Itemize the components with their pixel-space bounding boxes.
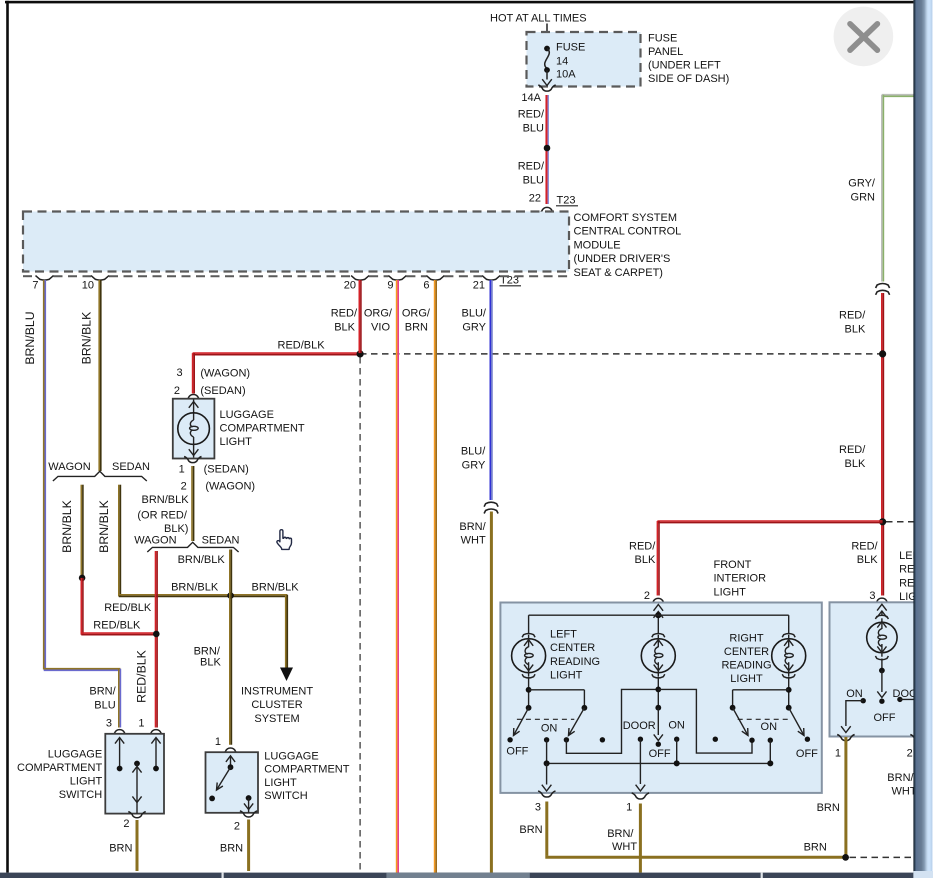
svg-text:SEDAN: SEDAN: [202, 534, 240, 546]
svg-text:COMPARTMENT: COMPARTMENT: [17, 762, 102, 774]
svg-text:ORG/: ORG/: [364, 307, 393, 319]
svg-text:14: 14: [556, 56, 568, 68]
svg-text:BLU: BLU: [523, 123, 544, 135]
svg-text:(WAGON): (WAGON): [205, 481, 255, 493]
svg-text:RED/BLK: RED/BLK: [93, 620, 141, 632]
svg-text:COMFORT SYSTEM: COMFORT SYSTEM: [574, 212, 678, 224]
svg-text:COMPARTMENT: COMPARTMENT: [220, 423, 305, 435]
svg-text:BRN/BLK: BRN/BLK: [252, 582, 300, 594]
svg-text:BRN/BLK: BRN/BLK: [97, 499, 111, 552]
svg-text:2: 2: [174, 385, 180, 397]
svg-text:COMPARTMENT: COMPARTMENT: [264, 764, 349, 776]
svg-text:(SEDAN): (SEDAN): [204, 463, 249, 475]
svg-text:GRY/: GRY/: [848, 178, 876, 190]
svg-text:READING: READING: [721, 660, 771, 672]
svg-text:(SEDAN): (SEDAN): [200, 385, 245, 397]
svg-text:2: 2: [123, 818, 129, 830]
svg-text:CENTER: CENTER: [550, 642, 595, 654]
svg-text:LIGHT: LIGHT: [714, 586, 747, 598]
svg-text:BLK: BLK: [845, 324, 866, 336]
svg-text:22: 22: [529, 193, 541, 205]
svg-text:GRY: GRY: [462, 321, 486, 333]
svg-text:1: 1: [138, 718, 144, 730]
svg-text:21: 21: [473, 280, 485, 292]
svg-text:INTERIOR: INTERIOR: [714, 573, 767, 585]
svg-text:BRN/BLK: BRN/BLK: [142, 494, 190, 506]
svg-text:ON: ON: [541, 723, 558, 735]
svg-text:BLU: BLU: [94, 700, 115, 712]
svg-text:2: 2: [234, 821, 240, 833]
svg-text:RED/: RED/: [851, 541, 878, 553]
svg-text:9: 9: [387, 280, 393, 292]
svg-text:BLK: BLK: [857, 554, 878, 566]
svg-text:ORG/: ORG/: [402, 307, 431, 319]
svg-text:(UNDER LEFT: (UNDER LEFT: [648, 60, 721, 72]
svg-text:BLK): BLK): [164, 523, 188, 535]
svg-text:BLK: BLK: [635, 554, 656, 566]
svg-text:INSTRUMENT: INSTRUMENT: [241, 686, 313, 698]
svg-text:ON: ON: [668, 720, 685, 732]
svg-text:SEAT & CARPET): SEAT & CARPET): [574, 267, 663, 279]
svg-text:BRN: BRN: [405, 321, 428, 333]
svg-text:SIDE OF DASH): SIDE OF DASH): [648, 73, 729, 85]
svg-text:RIGHT: RIGHT: [729, 632, 764, 644]
svg-text:ON: ON: [846, 688, 863, 700]
svg-text:RED/BLK: RED/BLK: [134, 649, 148, 702]
svg-text:WHT: WHT: [892, 786, 917, 798]
svg-text:LIGHT: LIGHT: [264, 777, 297, 789]
svg-text:ON: ON: [761, 721, 778, 733]
svg-text:VIO: VIO: [371, 321, 390, 333]
svg-text:BLU/: BLU/: [461, 446, 486, 458]
svg-text:3: 3: [535, 802, 541, 814]
svg-text:BRN/: BRN/: [89, 686, 116, 698]
svg-text:SWITCH: SWITCH: [59, 789, 102, 801]
svg-text:LUGGAGE: LUGGAGE: [220, 409, 274, 421]
svg-text:OFF: OFF: [874, 712, 896, 724]
svg-text:RED/: RED/: [839, 310, 866, 322]
svg-text:RED/BLK: RED/BLK: [278, 340, 326, 352]
svg-text:WHT: WHT: [461, 535, 486, 547]
svg-text:RED/: RED/: [331, 307, 358, 319]
svg-text:2: 2: [644, 590, 650, 602]
svg-text:2: 2: [181, 481, 187, 493]
svg-text:(WAGON): (WAGON): [200, 367, 250, 379]
svg-text:BRN/BLK: BRN/BLK: [178, 554, 226, 566]
svg-text:1: 1: [215, 736, 221, 748]
svg-text:MODULE: MODULE: [574, 239, 621, 251]
svg-text:T23: T23: [557, 195, 576, 207]
svg-text:LUGGAGE: LUGGAGE: [48, 749, 102, 761]
svg-text:DOOR: DOOR: [623, 720, 656, 732]
svg-text:FUSE: FUSE: [648, 33, 677, 45]
svg-text:BRN/BLK: BRN/BLK: [60, 499, 74, 552]
svg-text:OFF: OFF: [649, 748, 671, 760]
svg-text:CLUSTER: CLUSTER: [251, 699, 302, 711]
svg-text:BRN/BLK: BRN/BLK: [80, 311, 94, 364]
svg-text:CENTRAL CONTROL: CENTRAL CONTROL: [574, 226, 682, 238]
svg-text:READING: READING: [550, 656, 600, 668]
svg-text:CENTER: CENTER: [724, 646, 769, 658]
svg-text:BRN/BLK: BRN/BLK: [171, 582, 219, 594]
svg-text:SWITCH: SWITCH: [264, 790, 307, 802]
svg-text:(OR RED/: (OR RED/: [137, 510, 187, 522]
svg-text:HOT AT ALL TIMES: HOT AT ALL TIMES: [490, 13, 587, 25]
svg-text:RED/: RED/: [839, 444, 866, 456]
svg-text:BLK: BLK: [845, 458, 866, 470]
svg-text:10: 10: [82, 280, 94, 292]
svg-text:BLU/: BLU/: [462, 307, 487, 319]
svg-text:3: 3: [869, 590, 875, 602]
svg-text:WHT: WHT: [612, 841, 637, 853]
svg-text:SEDAN: SEDAN: [112, 461, 150, 473]
svg-text:RED/: RED/: [629, 541, 656, 553]
svg-text:2: 2: [907, 748, 913, 760]
svg-text:1: 1: [626, 802, 632, 814]
svg-text:1: 1: [835, 748, 841, 760]
svg-text:SYSTEM: SYSTEM: [254, 713, 299, 725]
svg-text:14A: 14A: [521, 92, 541, 104]
svg-text:LUGGAGE: LUGGAGE: [264, 751, 318, 763]
svg-text:1: 1: [179, 463, 185, 475]
svg-text:BRN: BRN: [220, 843, 243, 855]
svg-text:BRN/: BRN/: [459, 521, 486, 533]
svg-text:BRN: BRN: [804, 842, 827, 854]
svg-text:BRN/BLU: BRN/BLU: [23, 311, 37, 364]
svg-text:BRN: BRN: [817, 802, 840, 814]
svg-text:6: 6: [423, 280, 429, 292]
svg-text:LIGHT: LIGHT: [70, 776, 103, 788]
svg-text:LIGHT: LIGHT: [220, 436, 253, 448]
svg-text:RED/BLK: RED/BLK: [104, 602, 152, 614]
svg-text:BRN/: BRN/: [607, 828, 634, 840]
svg-text:OFF: OFF: [506, 746, 528, 758]
svg-text:FUSE: FUSE: [556, 42, 585, 54]
svg-text:3: 3: [176, 367, 182, 379]
svg-text:WAGON: WAGON: [48, 461, 90, 473]
svg-text:OFF: OFF: [796, 748, 818, 760]
svg-text:LIGHT: LIGHT: [730, 673, 763, 685]
svg-text:BLU: BLU: [523, 175, 544, 187]
svg-text:10A: 10A: [556, 69, 576, 81]
svg-text:GRY: GRY: [462, 459, 486, 471]
svg-text:3: 3: [106, 718, 112, 730]
svg-text:(UNDER DRIVER'S: (UNDER DRIVER'S: [574, 253, 671, 265]
svg-text:7: 7: [32, 280, 38, 292]
svg-text:BRN: BRN: [109, 843, 132, 855]
svg-text:PANEL: PANEL: [648, 46, 683, 58]
svg-text:RED/: RED/: [518, 109, 545, 121]
svg-text:LEFT: LEFT: [550, 628, 577, 640]
svg-text:FRONT: FRONT: [714, 559, 752, 571]
svg-text:BRN: BRN: [519, 824, 542, 836]
svg-text:BLK: BLK: [200, 656, 221, 668]
svg-text:BRN/: BRN/: [887, 772, 914, 784]
svg-text:20: 20: [344, 280, 356, 292]
svg-text:BLK: BLK: [334, 321, 355, 333]
svg-text:GRN: GRN: [851, 192, 876, 204]
svg-text:WAGON: WAGON: [134, 534, 176, 546]
svg-text:LIGHT: LIGHT: [550, 670, 583, 682]
svg-text:RED/: RED/: [518, 161, 545, 173]
